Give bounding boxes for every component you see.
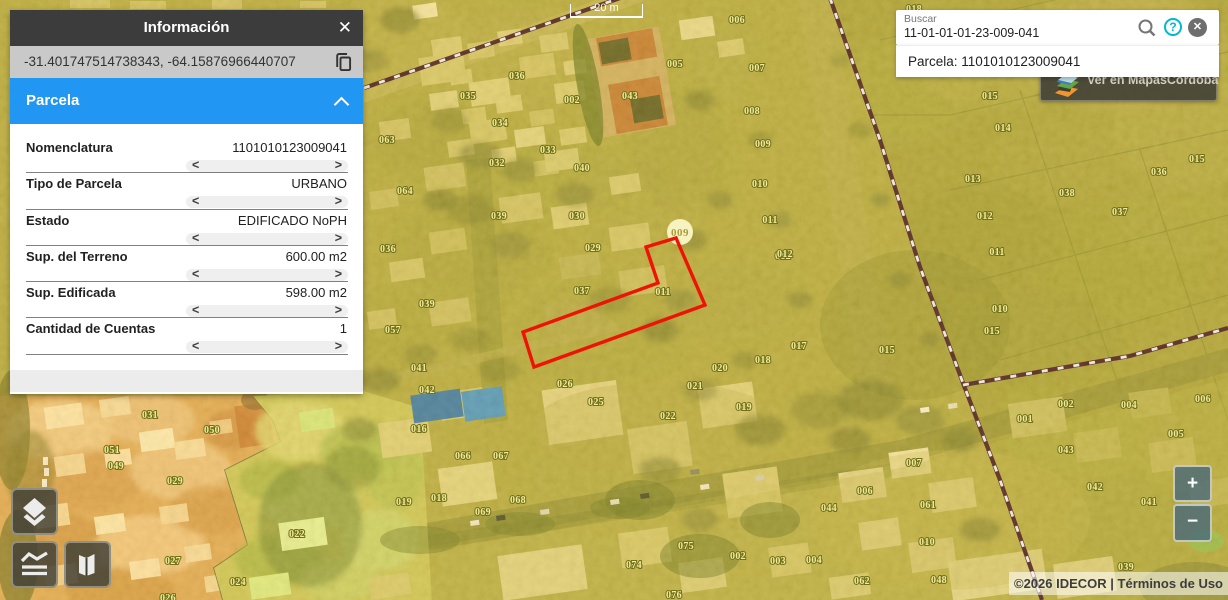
svg-text:037: 037 <box>1112 207 1128 218</box>
svg-text:005: 005 <box>667 59 683 70</box>
svg-text:039: 039 <box>419 299 435 310</box>
svg-text:066: 066 <box>455 451 471 462</box>
svg-text:025: 025 <box>588 397 604 408</box>
svg-text:036: 036 <box>1151 167 1167 178</box>
svg-text:007: 007 <box>906 458 922 469</box>
svg-text:002: 002 <box>730 551 746 562</box>
svg-text:017: 017 <box>791 341 807 352</box>
svg-text:042: 042 <box>419 385 435 396</box>
svg-text:011: 011 <box>989 247 1004 258</box>
svg-text:034: 034 <box>492 118 508 129</box>
svg-text:044: 044 <box>821 503 837 514</box>
svg-text:002: 002 <box>564 95 580 106</box>
svg-text:038: 038 <box>1059 188 1075 199</box>
svg-text:013: 013 <box>965 174 981 185</box>
svg-text:019: 019 <box>396 497 412 508</box>
svg-text:042: 042 <box>1087 482 1103 493</box>
svg-text:010: 010 <box>992 304 1008 315</box>
svg-text:062: 062 <box>854 576 870 587</box>
svg-text:009: 009 <box>755 139 771 150</box>
svg-text:014: 014 <box>995 123 1011 134</box>
svg-text:004: 004 <box>1121 400 1137 411</box>
svg-text:075: 075 <box>678 541 694 552</box>
svg-text:067: 067 <box>493 451 509 462</box>
svg-text:049: 049 <box>108 461 124 472</box>
svg-text:024: 024 <box>230 577 246 588</box>
svg-text:015: 015 <box>984 326 1000 337</box>
svg-text:074: 074 <box>626 560 642 571</box>
svg-text:003: 003 <box>770 556 786 567</box>
svg-text:033: 033 <box>540 145 556 156</box>
svg-text:012: 012 <box>777 249 793 260</box>
svg-text:015: 015 <box>879 345 895 356</box>
svg-text:010: 010 <box>919 537 935 548</box>
svg-text:005: 005 <box>1168 429 1184 440</box>
svg-text:018: 018 <box>431 493 447 504</box>
svg-text:050: 050 <box>204 425 220 436</box>
svg-text:048: 048 <box>931 575 947 586</box>
svg-text:036: 036 <box>380 244 396 255</box>
svg-text:016: 016 <box>411 424 427 435</box>
svg-text:007: 007 <box>749 63 765 74</box>
svg-text:031: 031 <box>142 410 158 421</box>
svg-text:015: 015 <box>1189 154 1205 165</box>
svg-text:029: 029 <box>585 243 601 254</box>
svg-text:061: 061 <box>920 500 936 511</box>
svg-text:076: 076 <box>666 590 682 600</box>
svg-text:019: 019 <box>736 402 752 413</box>
svg-text:012: 012 <box>977 211 993 222</box>
svg-text:022: 022 <box>289 529 305 540</box>
svg-text:006: 006 <box>729 15 745 26</box>
svg-text:027: 027 <box>165 556 181 567</box>
svg-text:026: 026 <box>160 593 176 600</box>
svg-text:040: 040 <box>574 163 590 174</box>
svg-text:029: 029 <box>167 476 183 487</box>
svg-text:022: 022 <box>660 411 676 422</box>
svg-text:041: 041 <box>1141 497 1157 508</box>
svg-text:043: 043 <box>1058 445 1074 456</box>
svg-text:039: 039 <box>491 211 507 222</box>
svg-text:010: 010 <box>752 179 768 190</box>
svg-text:011: 011 <box>762 215 777 226</box>
svg-text:001: 001 <box>1017 414 1033 425</box>
svg-text:043: 043 <box>622 91 638 102</box>
svg-text:063: 063 <box>379 135 395 146</box>
svg-text:002: 002 <box>1058 399 1074 410</box>
svg-text:020: 020 <box>712 363 728 374</box>
svg-text:037: 037 <box>574 286 590 297</box>
svg-text:030: 030 <box>569 211 585 222</box>
svg-text:064: 064 <box>397 186 413 197</box>
svg-text:035: 035 <box>460 91 476 102</box>
svg-text:068: 068 <box>510 495 526 506</box>
svg-text:057: 057 <box>385 325 401 336</box>
svg-text:036: 036 <box>509 71 525 82</box>
svg-text:006: 006 <box>1195 394 1211 405</box>
svg-text:015: 015 <box>982 91 998 102</box>
svg-text:004: 004 <box>806 555 822 566</box>
svg-text:021: 021 <box>687 381 703 392</box>
svg-text:018: 018 <box>755 355 771 366</box>
svg-text:026: 026 <box>557 379 573 390</box>
svg-text:041: 041 <box>411 363 427 374</box>
svg-text:008: 008 <box>744 106 760 117</box>
svg-text:051: 051 <box>104 445 120 456</box>
svg-text:011: 011 <box>655 287 670 298</box>
svg-text:032: 032 <box>489 158 505 169</box>
svg-text:006: 006 <box>857 486 873 497</box>
svg-text:069: 069 <box>475 507 491 518</box>
